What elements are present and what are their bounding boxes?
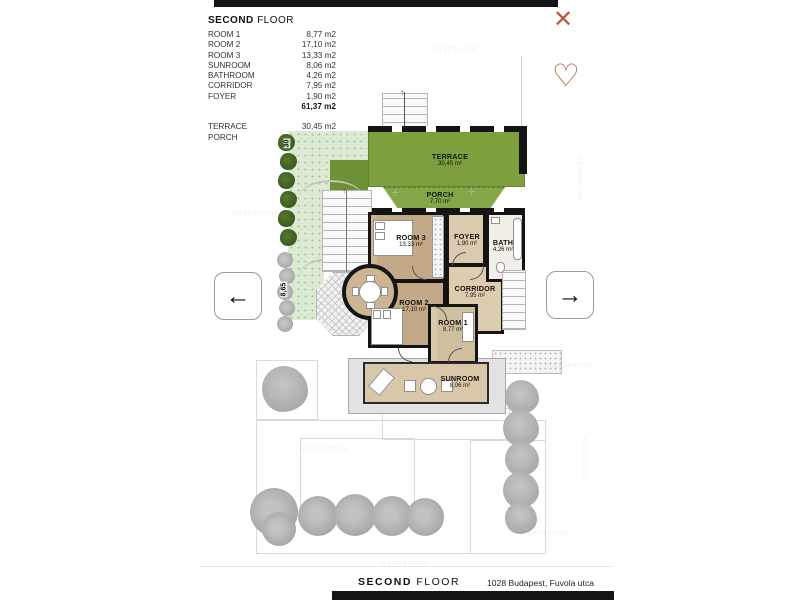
pillow: [375, 222, 385, 230]
chair: [352, 287, 359, 296]
watermark: ingatlancom: [581, 434, 588, 483]
terrace-wall-right: [519, 126, 527, 174]
tree: [278, 210, 295, 227]
tree: [280, 153, 297, 170]
chair: [381, 287, 388, 296]
bush: [406, 498, 444, 536]
tree: [280, 229, 297, 246]
tree-gray: [505, 442, 539, 476]
room-label: ROOM 313,33 m²: [385, 233, 437, 248]
chair: [404, 380, 416, 392]
room-label: FOYER1,90 m²: [448, 232, 486, 247]
room-label: BATH4,26 m²: [487, 238, 519, 253]
room-label: ROOM 217,10 m²: [388, 298, 440, 313]
porch-ornament-icon: [392, 189, 399, 196]
pillow: [375, 232, 385, 240]
watermark: ingatlancom: [545, 362, 594, 369]
tree-gray: [503, 410, 539, 446]
bush: [334, 494, 376, 536]
stairs-direction-line: [346, 190, 347, 272]
watermark: ingatlancom: [520, 530, 569, 537]
watermark: ingatlancom: [430, 46, 479, 53]
bush: [279, 300, 295, 316]
bush: [262, 512, 296, 546]
dimension-label: 8,65: [280, 282, 287, 298]
stairs-up-arrow-icon: ↑: [342, 186, 346, 195]
tree: [280, 191, 297, 208]
bush: [277, 316, 293, 332]
tree-gray: [505, 380, 539, 414]
round-table: [359, 281, 381, 303]
lot-boundary-line: [521, 56, 522, 130]
tree: [278, 172, 295, 189]
room-label: TERRACE30,45 m²: [415, 152, 485, 167]
sink: [491, 217, 500, 224]
room-label: PORCH7,70 m²: [405, 190, 475, 205]
bush: [298, 496, 338, 536]
chair: [366, 302, 375, 309]
dimension-label: 30: [283, 139, 290, 149]
watermark: ingatlancom: [300, 446, 349, 453]
room-label: ROOM 18,77 m²: [430, 318, 476, 333]
stairs-up-arrow-icon: ↑: [400, 88, 404, 97]
interior-stairs: [502, 270, 526, 330]
room-label: SUNROOM8,06 m²: [432, 374, 488, 389]
watermark: ingatlancom: [380, 560, 429, 567]
floor-plan: ↑ TERRACE30,45 m² PORCH7,70 m² ↑ ROOM 31…: [0, 0, 800, 600]
tree-gray: [262, 366, 308, 412]
bush: [277, 252, 293, 268]
pillow: [373, 310, 381, 319]
garden-stairs: [322, 190, 372, 272]
toilet: [496, 262, 505, 273]
room-label: CORRIDOR7,95 m²: [448, 284, 502, 299]
watermark: ingatlancom: [576, 154, 583, 203]
terrace-wall: [368, 126, 525, 132]
watermark: ingatlancom: [230, 210, 279, 217]
